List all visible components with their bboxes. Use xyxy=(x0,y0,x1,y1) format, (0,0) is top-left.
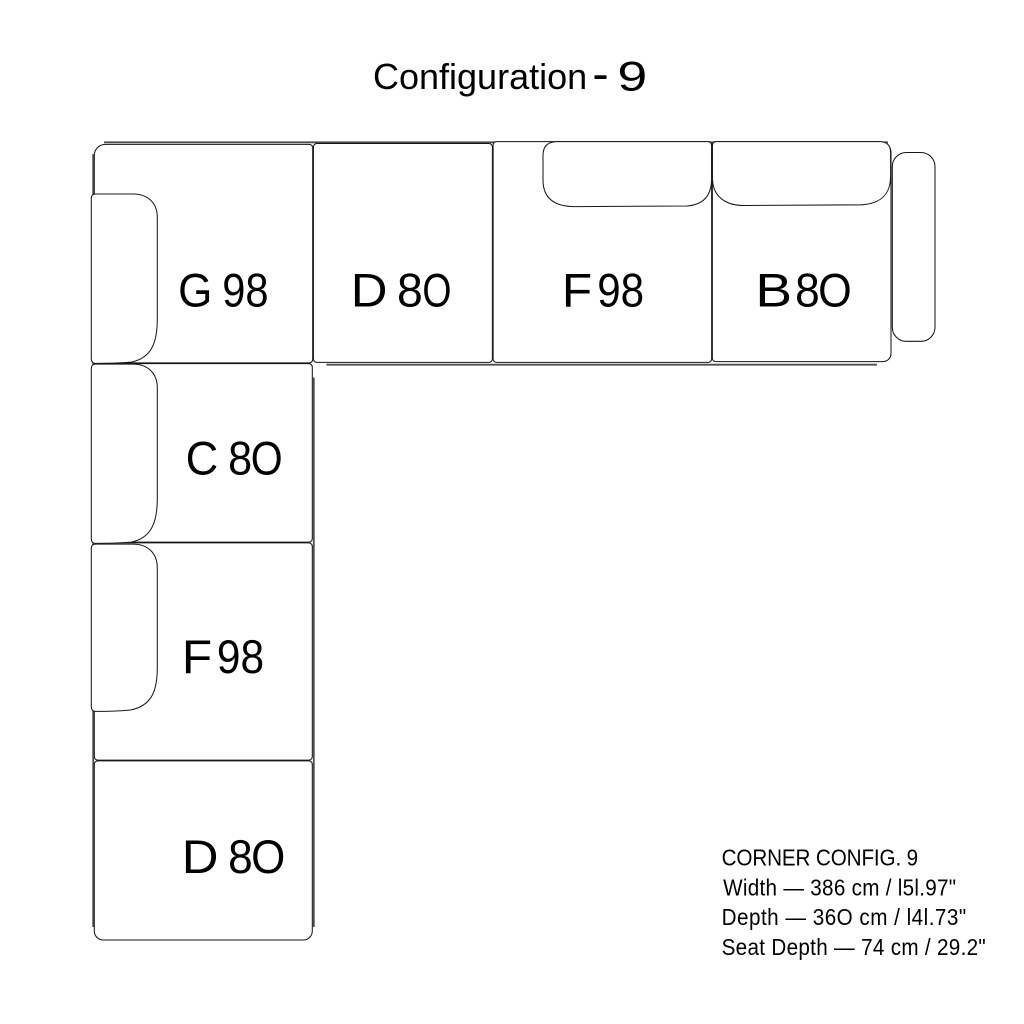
svg-text:8: 8 xyxy=(795,263,820,317)
svg-text:G: G xyxy=(178,264,212,317)
svg-text:98: 98 xyxy=(217,630,264,684)
svg-text:C: C xyxy=(186,431,219,484)
svg-text:O: O xyxy=(818,264,852,317)
svg-text:9: 9 xyxy=(617,53,647,100)
svg-text:8: 8 xyxy=(228,431,252,484)
svg-text:D: D xyxy=(182,830,219,883)
svg-text:B: B xyxy=(755,263,792,317)
svg-text:8: 8 xyxy=(228,829,253,883)
svg-text:O: O xyxy=(251,433,283,485)
svg-text:CORNER CONFIG. 9: CORNER CONFIG. 9 xyxy=(722,844,918,871)
svg-text:F: F xyxy=(562,265,592,318)
svg-text:D: D xyxy=(351,264,388,317)
svg-text:Configuration: Configuration xyxy=(373,56,587,97)
svg-text:98: 98 xyxy=(597,263,644,317)
svg-text:98: 98 xyxy=(222,265,268,317)
svg-text:Width — 386 cm / l5l.97": Width — 386 cm / l5l.97" xyxy=(723,874,956,901)
svg-text:O: O xyxy=(251,830,285,883)
svg-text:F: F xyxy=(182,631,212,684)
svg-text:8: 8 xyxy=(397,263,423,317)
svg-text:Depth — 36O cm / l4l.73": Depth — 36O cm / l4l.73" xyxy=(722,904,967,931)
svg-text:Seat Depth — 74 cm / 29.2": Seat Depth — 74 cm / 29.2" xyxy=(722,934,986,961)
svg-text:O: O xyxy=(422,264,451,317)
